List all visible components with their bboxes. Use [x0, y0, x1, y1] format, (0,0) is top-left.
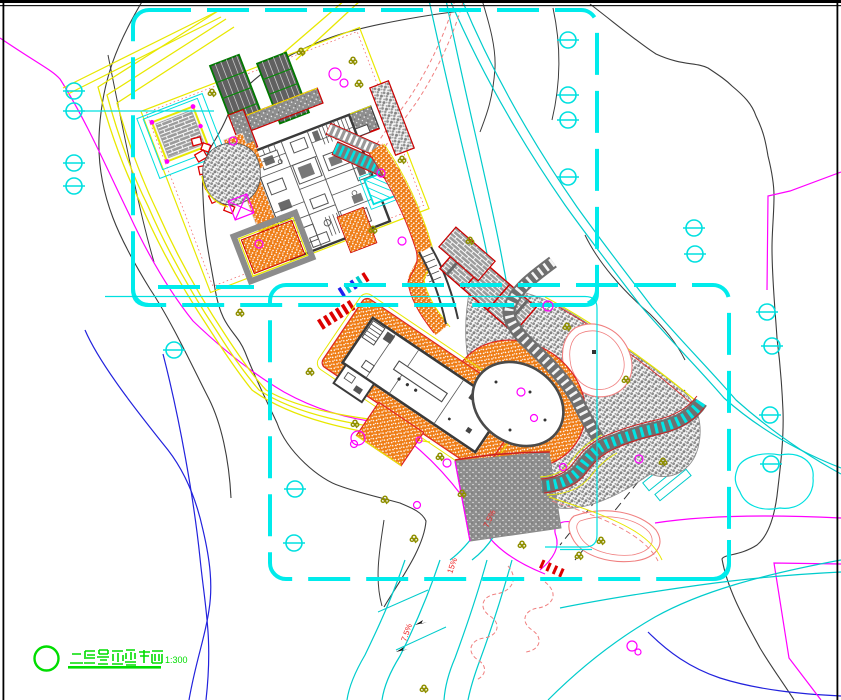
- svg-text:1:300: 1:300: [165, 655, 188, 665]
